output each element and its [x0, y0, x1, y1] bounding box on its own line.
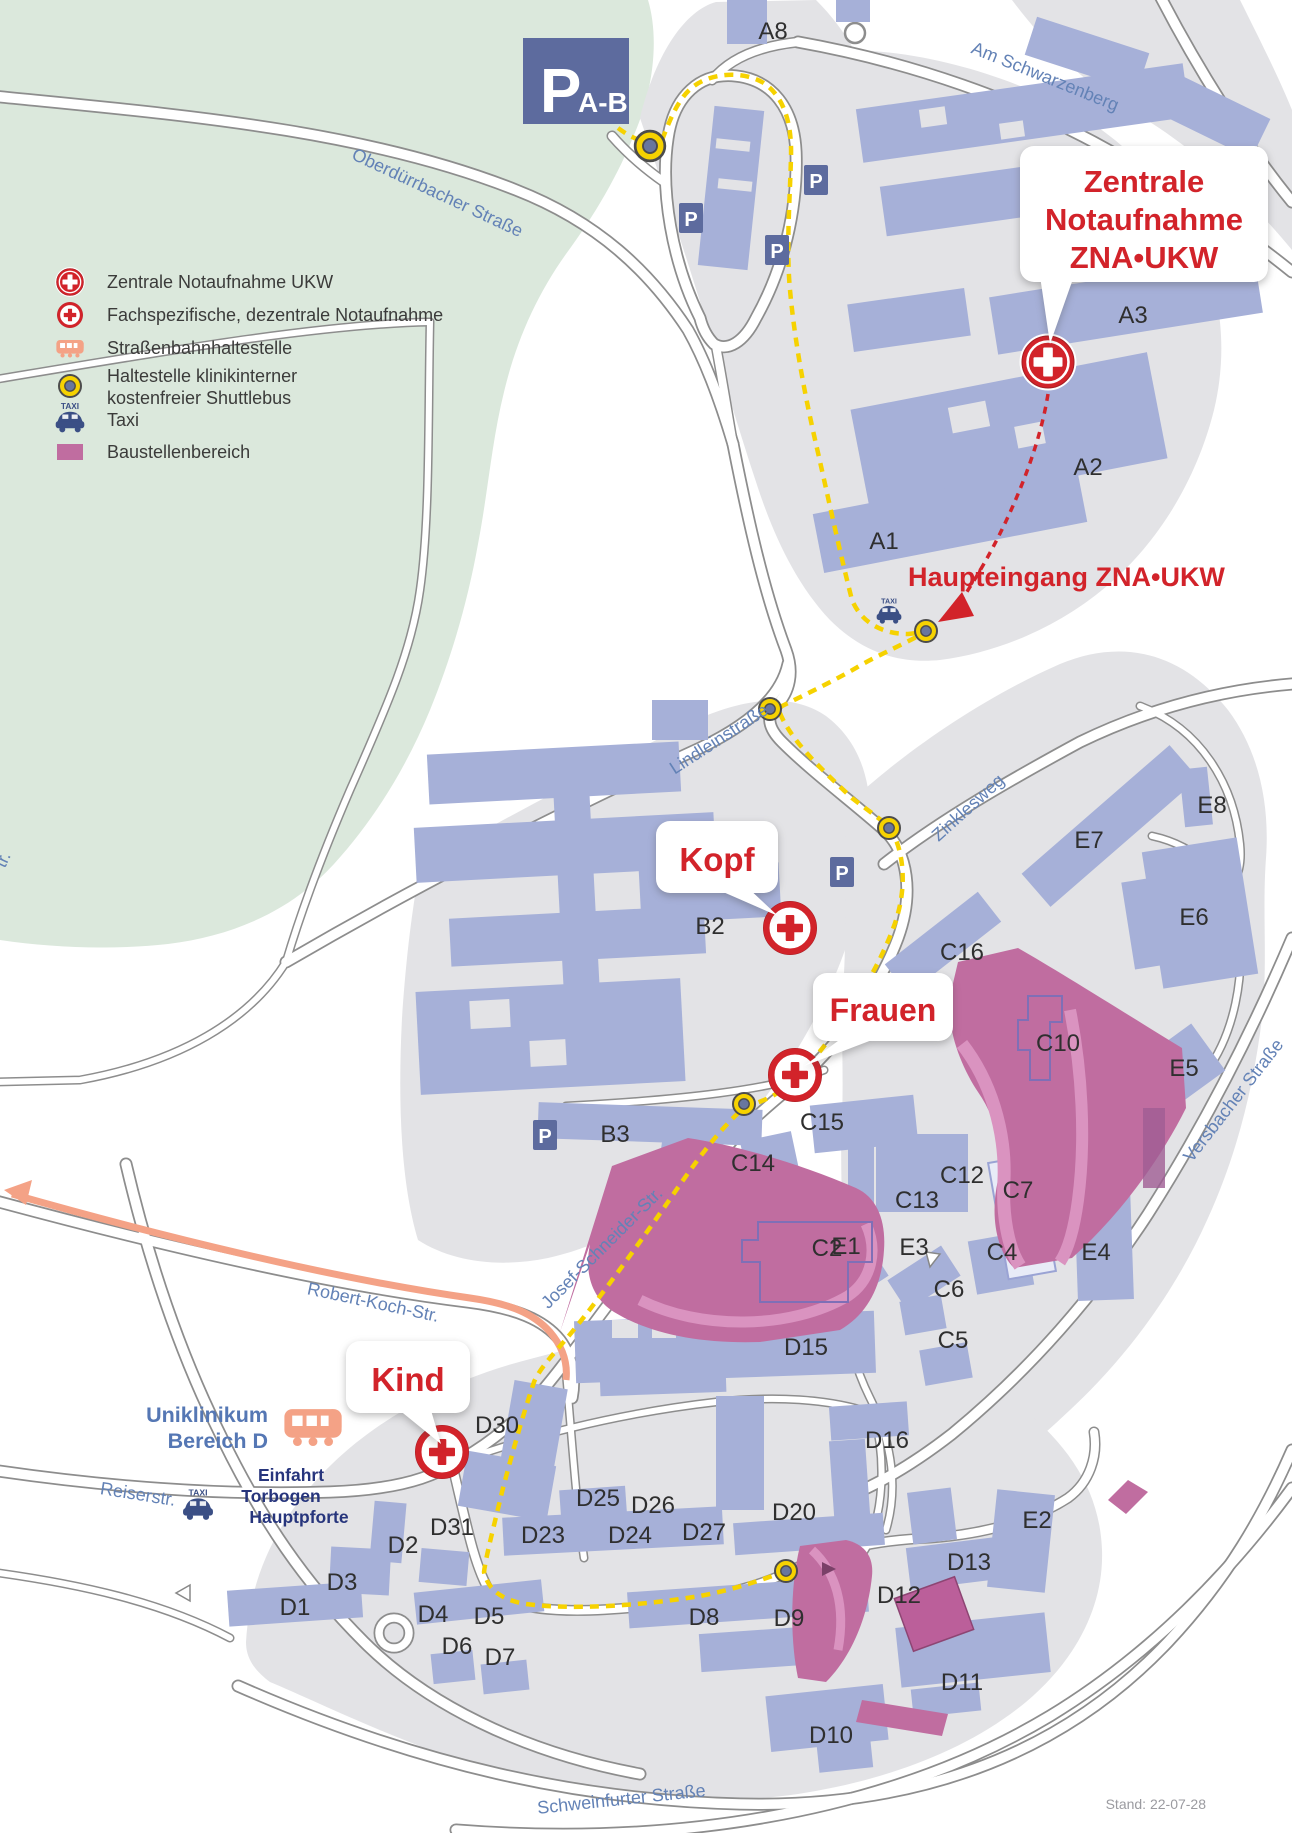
map-svg: TAXI: [0, 0, 1292, 1833]
building-label-D7: D7: [485, 1644, 516, 1671]
building-label-A1: A1: [869, 528, 898, 555]
building-label-D12: D12: [877, 1582, 921, 1609]
building-label-D15: D15: [784, 1334, 828, 1361]
building-label-A3: A3: [1118, 302, 1147, 329]
callout-zna-line1: Zentrale: [1084, 164, 1205, 199]
building-label-C15: C15: [800, 1109, 844, 1136]
building-label-E7: E7: [1074, 827, 1103, 854]
legend-text: Haltestelle klinikinterner: [107, 366, 297, 386]
building-label-D8: D8: [689, 1604, 720, 1631]
parking-ab-letter: P: [540, 57, 581, 126]
legend-text: Taxi: [107, 410, 139, 430]
building-label-D31: D31: [430, 1514, 474, 1541]
building-label-D30: D30: [475, 1412, 519, 1439]
legend-text: Baustellenbereich: [107, 442, 250, 462]
callout-zna-line2: Notaufnahme: [1045, 202, 1243, 237]
building-label-E5: E5: [1169, 1055, 1198, 1082]
parking-sign-letter: P: [684, 209, 697, 231]
building-label-C14: C14: [731, 1150, 775, 1177]
parking-ab-sub: A-B: [578, 87, 628, 118]
building-label-C13: C13: [895, 1187, 939, 1214]
building-label-D25: D25: [576, 1485, 620, 1512]
entrance-label-line2: Torbogen: [241, 1486, 320, 1506]
parking-sign-letter: P: [809, 171, 822, 193]
building-label-C6: C6: [934, 1276, 965, 1303]
building-label-D11: D11: [941, 1669, 983, 1696]
map-date-stamp: Stand: 22-07-28: [1106, 1796, 1207, 1812]
shuttle-stop-icon: [635, 131, 665, 161]
building-label-D1: D1: [280, 1594, 311, 1621]
entrance-label-line3: Hauptpforte: [249, 1507, 348, 1527]
legend-text: Zentrale Notaufnahme UKW: [107, 272, 333, 292]
shuttle-stop-icon: [915, 620, 937, 642]
building-label-A8: A8: [758, 18, 787, 45]
shuttle-stop-icon: [733, 1093, 755, 1115]
building-label-D4: D4: [418, 1601, 449, 1628]
building: [419, 1548, 470, 1586]
building-label-C5: C5: [938, 1327, 969, 1354]
decentral-emergency-marker-icon: [764, 902, 817, 955]
callout-kind-label: Kind: [371, 1361, 444, 1398]
shuttle-stop-icon: [878, 817, 900, 839]
building-label-D2: D2: [388, 1532, 419, 1559]
building-label-E6: E6: [1179, 904, 1208, 931]
building-label-D5: D5: [474, 1603, 505, 1630]
building-label-C16: C16: [940, 939, 984, 966]
marker-central-icon: [55, 267, 85, 297]
building-label-E4: E4: [1081, 1239, 1110, 1266]
building-label-E8: E8: [1197, 792, 1226, 819]
shuttle-stop-icon: [775, 1560, 797, 1582]
building-label-D3: D3: [327, 1569, 358, 1596]
parking-sign-letter: P: [835, 863, 848, 885]
legend-text: Straßenbahnhaltestelle: [107, 338, 292, 358]
building-courtyard: [612, 1320, 638, 1338]
building-label-D24: D24: [608, 1522, 652, 1549]
central-emergency-marker-icon: [1020, 334, 1077, 391]
construction-icon: [57, 444, 83, 460]
building-label-D10: D10: [809, 1722, 853, 1749]
building-courtyard: [919, 106, 947, 127]
callout-kopf-label: Kopf: [679, 841, 755, 878]
building: [836, 0, 870, 22]
building-label-D23: D23: [521, 1522, 565, 1549]
entrance-label-line1: Einfahrt: [258, 1465, 324, 1485]
parking-sign-letter: P: [538, 1126, 551, 1148]
building-label-D26: D26: [631, 1492, 675, 1519]
decentral-emergency-marker-icon: [416, 1426, 469, 1479]
parking-ab-sign: P A-B: [523, 38, 629, 126]
building: [600, 1366, 727, 1396]
building-label-D9: D9: [774, 1605, 805, 1632]
building: [716, 1396, 764, 1510]
building-label-B3: B3: [600, 1121, 629, 1148]
building-label-C7: C7: [1003, 1177, 1034, 1204]
marker-decentral-icon: [57, 302, 82, 327]
building-courtyard: [999, 120, 1025, 139]
building-label-C12: C12: [940, 1162, 984, 1189]
building-label-D27: D27: [682, 1519, 726, 1546]
building-label-D16: D16: [865, 1427, 909, 1454]
area-d-label-line1: Uniklinikum: [146, 1403, 268, 1427]
building-label-B2: B2: [695, 913, 724, 940]
building: [415, 978, 685, 1095]
area-d-label-line2: Bereich D: [168, 1429, 268, 1453]
building: [652, 700, 708, 740]
building-label-E3: E3: [899, 1234, 928, 1261]
building-label-C4: C4: [987, 1239, 1018, 1266]
decentral-emergency-marker-icon: [769, 1049, 822, 1102]
callout-zna-line3: ZNA•UKW: [1070, 240, 1219, 275]
building-label-D6: D6: [442, 1633, 473, 1660]
building-label-C10: C10: [1036, 1030, 1080, 1057]
callout-frauen-label: Frauen: [830, 992, 937, 1028]
legend-text: kostenfreier Shuttlebus: [107, 388, 291, 408]
building-courtyard: [529, 1039, 566, 1067]
legend-text: Fachspezifische, dezentrale Notaufnahme: [107, 305, 443, 325]
parking-sign-letter: P: [770, 241, 783, 263]
building-label-E1: E1: [831, 1233, 860, 1260]
campus-map: TAXI: [0, 0, 1292, 1833]
building-courtyard: [469, 999, 510, 1029]
stop-icon: [59, 375, 81, 397]
building-label-D13: D13: [947, 1549, 991, 1576]
cul-de-sac: [845, 23, 865, 43]
building: [907, 1488, 957, 1545]
building-label-E2: E2: [1022, 1507, 1051, 1534]
building-label-D20: D20: [772, 1499, 816, 1526]
haupteingang-label: Haupteingang ZNA•UKW: [908, 562, 1225, 592]
building-label-A2: A2: [1073, 454, 1102, 481]
